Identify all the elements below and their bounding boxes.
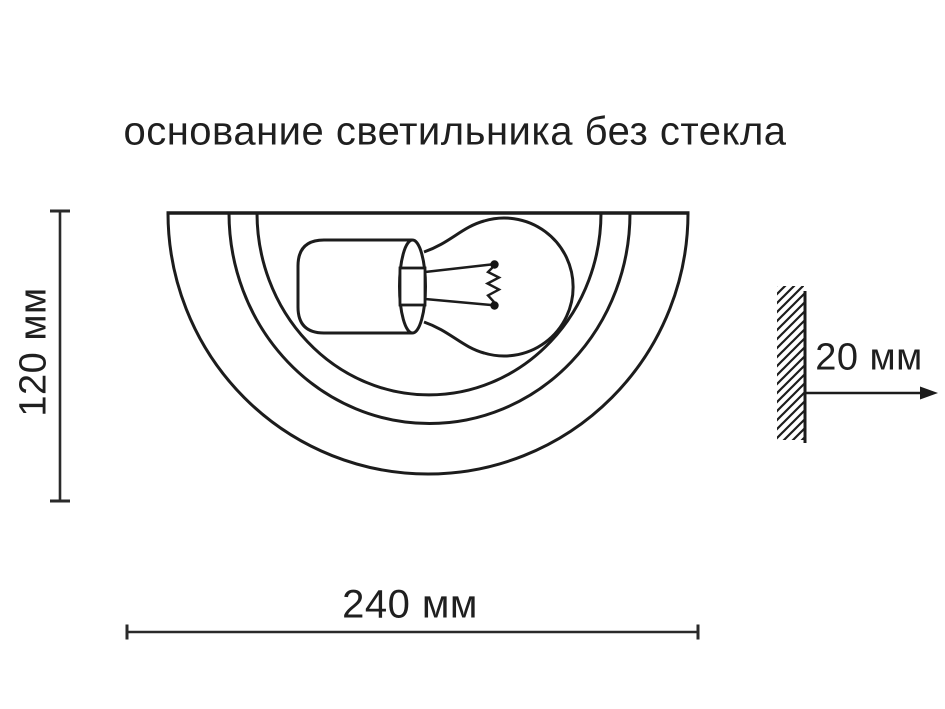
bulb-base xyxy=(400,268,425,305)
filament-wires xyxy=(425,265,491,306)
offset-arrow xyxy=(806,387,938,400)
lamp-arc-outer xyxy=(168,213,688,474)
filament-contact-top xyxy=(490,260,498,268)
diagram-canvas: основание светильника без стекла xyxy=(0,0,945,709)
light-bulb xyxy=(400,218,573,356)
filament-contact-bottom xyxy=(490,301,498,309)
lamp-base-outline xyxy=(167,213,690,474)
offset-arrow-head xyxy=(920,387,938,400)
height-dimension-label: 120 мм xyxy=(13,287,56,416)
lamp-arc-inner xyxy=(257,213,601,395)
wall-hatch xyxy=(777,286,804,440)
filament-coil xyxy=(488,266,500,302)
offset-dimension-label: 20 мм xyxy=(815,337,923,380)
bulb-glass-outline xyxy=(424,218,573,356)
width-dimension-label: 240 мм xyxy=(342,583,478,628)
socket-body xyxy=(298,240,412,333)
wall-section xyxy=(777,286,805,443)
